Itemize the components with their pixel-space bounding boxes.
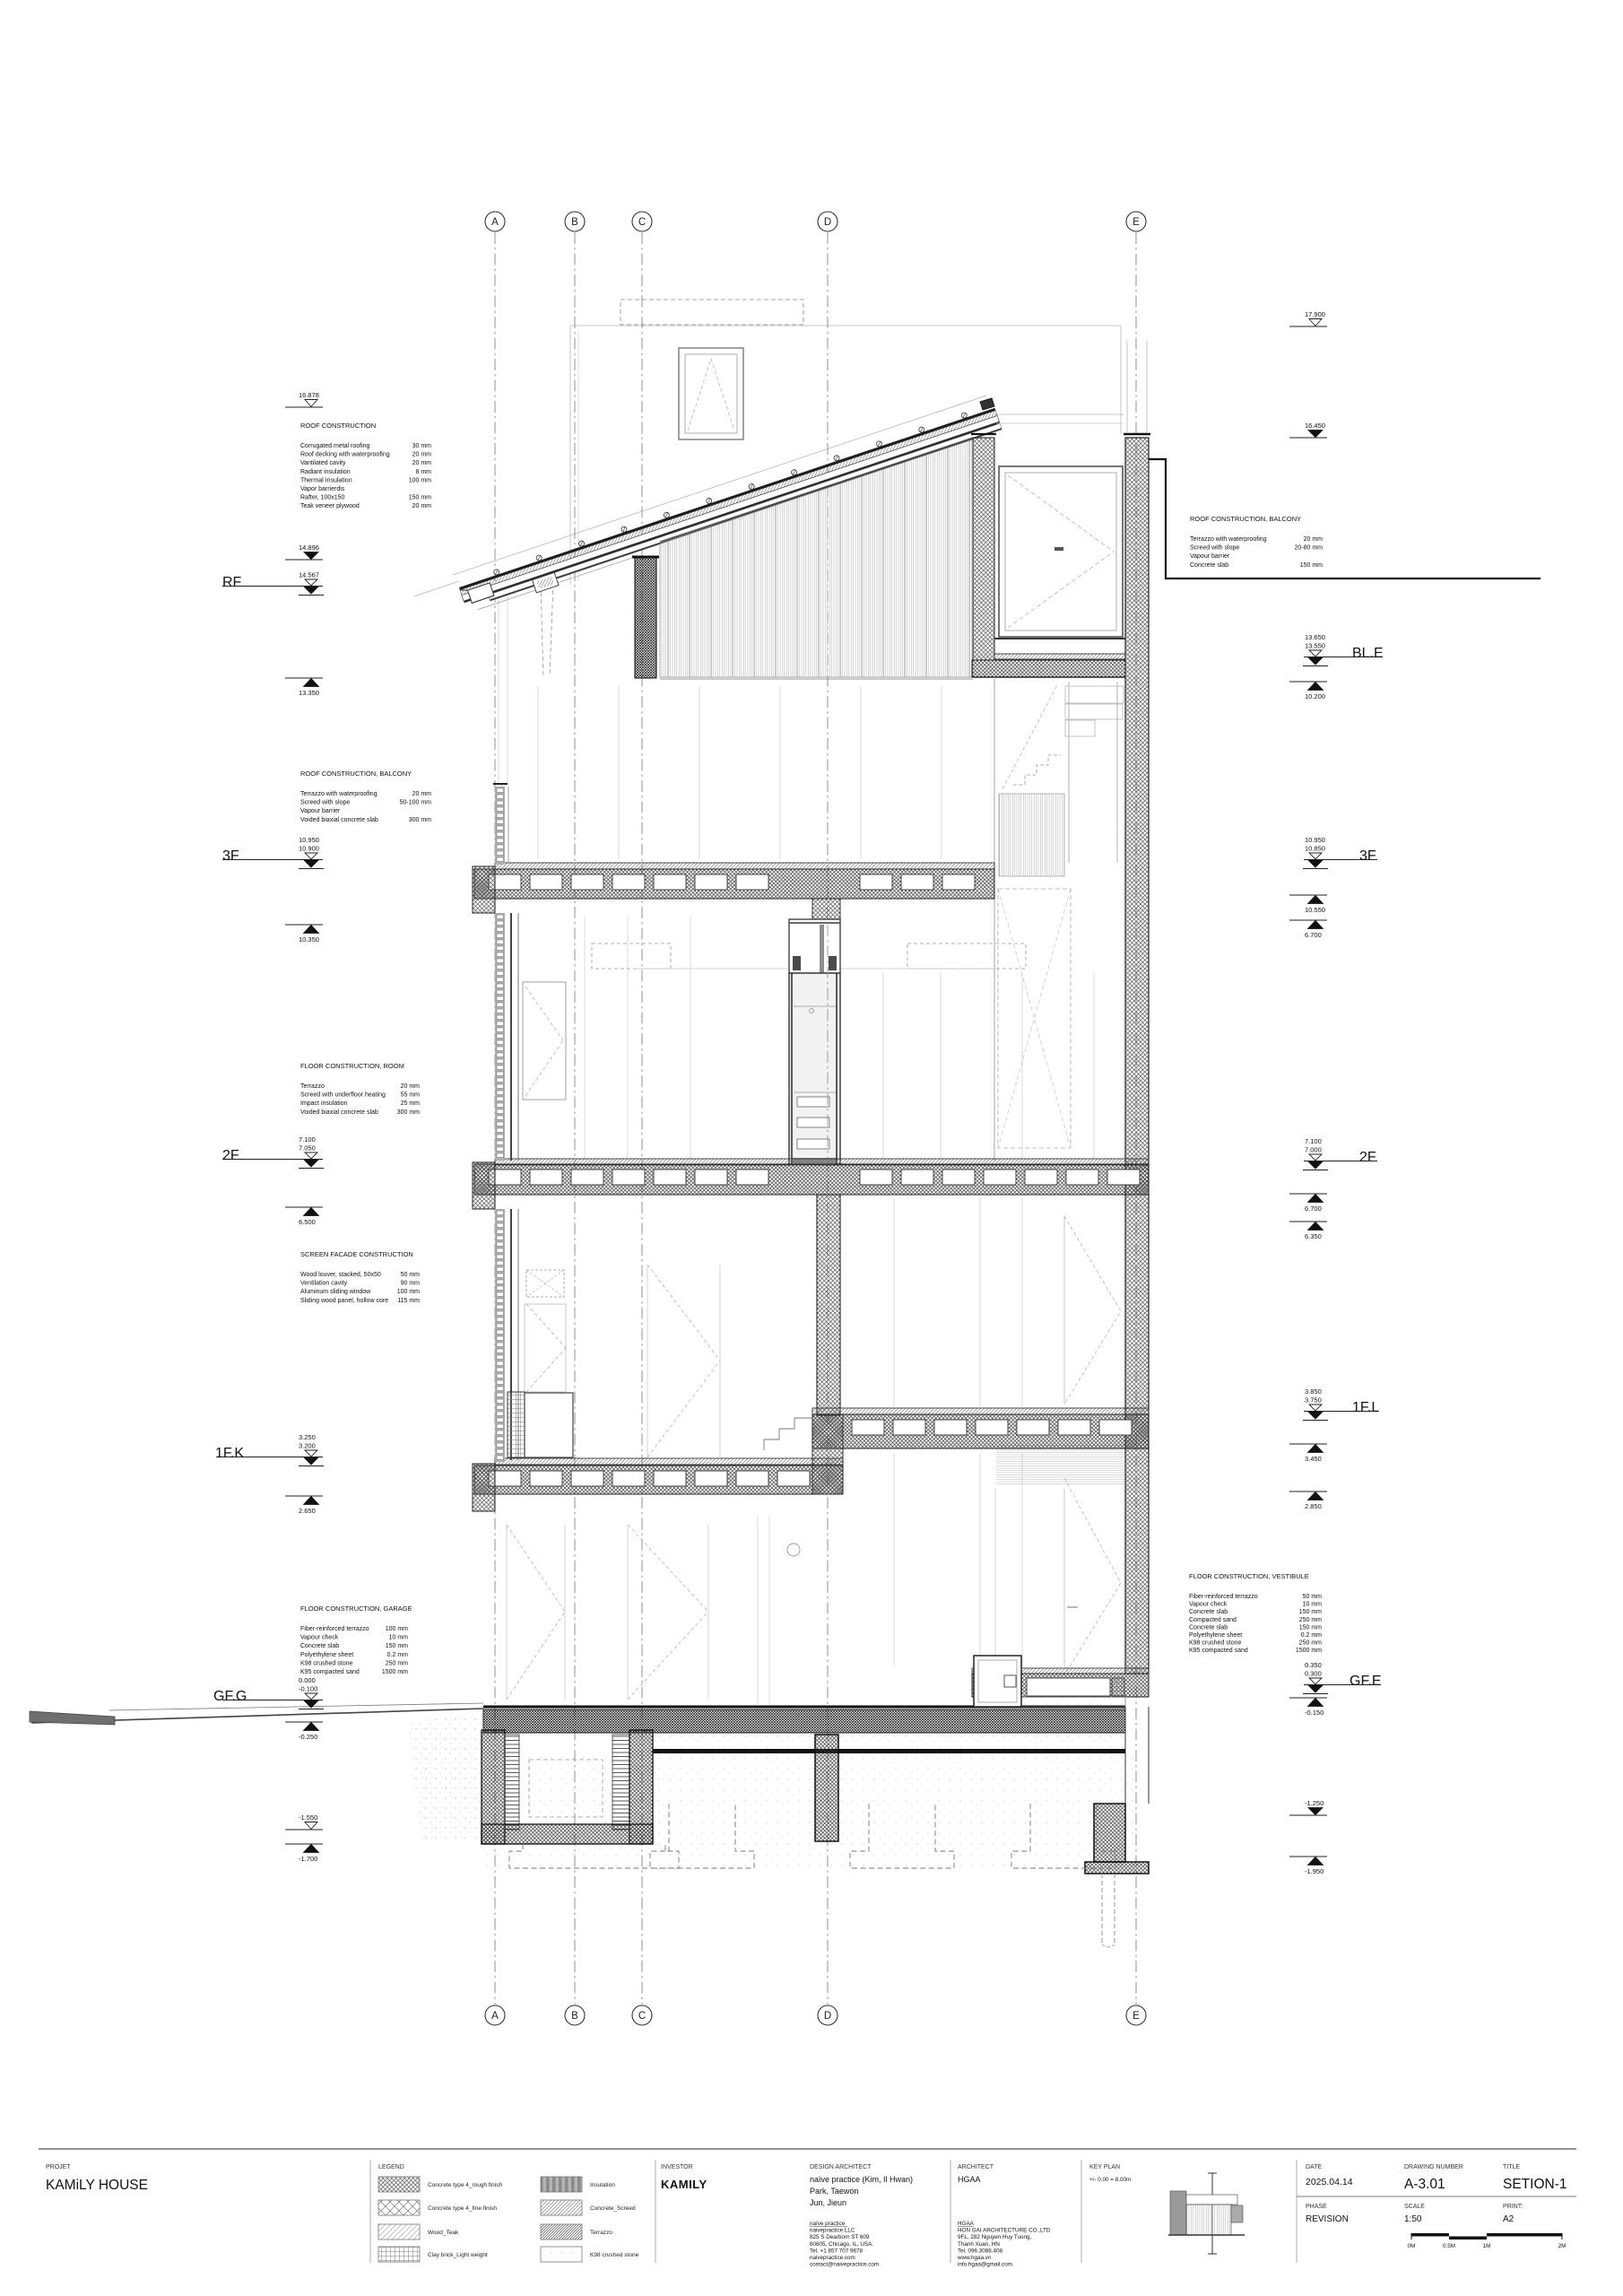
svg-text:PRINT:: PRINT: [1503, 2204, 1523, 2210]
svg-text:10.350: 10.350 [299, 935, 319, 944]
svg-text:100 mm: 100 mm [397, 1289, 420, 1295]
svg-text:30 mm: 30 mm [412, 443, 432, 449]
svg-text:Concrete slab: Concrete slab [1189, 1609, 1228, 1615]
svg-text:K98 crushed stone: K98 crushed stone [300, 1660, 352, 1666]
svg-text:6.700: 6.700 [1305, 931, 1322, 939]
svg-text:10.550: 10.550 [1305, 906, 1325, 914]
svg-text:Concrete slab: Concrete slab [1189, 1624, 1228, 1631]
svg-text:20 mm: 20 mm [412, 791, 432, 797]
svg-text:ROOF CONSTRUCTION, BALCONY: ROOF CONSTRUCTION, BALCONY [300, 770, 412, 778]
svg-text:Terrazzo: Terrazzo [300, 1083, 325, 1090]
svg-text:Roof decking with waterproofin: Roof decking with waterproofing [300, 452, 390, 458]
svg-text:150 mm: 150 mm [386, 1643, 408, 1649]
svg-text:A-3.01: A-3.01 [1404, 2177, 1445, 2192]
svg-text:250 mm: 250 mm [1299, 1617, 1322, 1623]
svg-text:Screed with underfloor heating: Screed with underfloor heating [300, 1092, 386, 1099]
svg-text:14.896: 14.896 [299, 544, 319, 552]
svg-text:naïve practice: naïve practice [810, 2221, 846, 2227]
svg-text:115 mm: 115 mm [397, 1298, 420, 1304]
svg-text:825 S Dearborn ST 609: 825 S Dearborn ST 609 [810, 2234, 870, 2240]
svg-text:FLOOR CONSTRUCTION, VESTIBULE: FLOOR CONSTRUCTION, VESTIBULE [1189, 1572, 1309, 1580]
svg-text:150 mm: 150 mm [409, 495, 431, 501]
svg-text:-0.100: -0.100 [299, 1685, 317, 1693]
svg-text:Corrugated metal roofing: Corrugated metal roofing [300, 443, 370, 449]
svg-text:Vantilated cavity: Vantilated cavity [300, 460, 346, 466]
svg-text:Impact insulation: Impact insulation [300, 1100, 348, 1107]
svg-text:Concrete slab: Concrete slab [300, 1643, 339, 1649]
svg-text:Concrete type 4_rough finish: Concrete type 4_rough finish [428, 2182, 502, 2188]
svg-text:Rafter, 100x150: Rafter, 100x150 [300, 495, 345, 501]
svg-text:Terrazzo with waterproofing: Terrazzo with waterproofing [300, 791, 378, 797]
svg-text:13.350: 13.350 [299, 689, 319, 697]
svg-text:8 mm: 8 mm [416, 469, 432, 475]
svg-text:SCREEN FACADE CONSTRUCTION: SCREEN FACADE CONSTRUCTION [300, 1250, 413, 1258]
svg-text:Screed with slope: Screed with slope [300, 800, 350, 806]
svg-text:K98 crushed stone: K98 crushed stone [590, 2252, 639, 2258]
svg-text:www.hgaa.vn: www.hgaa.vn [957, 2255, 992, 2261]
svg-text:Fiber-reinforced terrazzo: Fiber-reinforced terrazzo [1189, 1594, 1258, 1600]
svg-text:Aluminum sliding window: Aluminum sliding window [300, 1289, 371, 1295]
svg-text:20 mm: 20 mm [412, 452, 432, 458]
svg-text:0.300: 0.300 [1305, 1670, 1322, 1678]
svg-text:Voided biaxial concrete slab: Voided biaxial concrete slab [300, 1109, 378, 1116]
svg-text:1500 mm: 1500 mm [1296, 1648, 1322, 1654]
svg-text:7.100: 7.100 [299, 1135, 316, 1144]
svg-text:-1.700: -1.700 [299, 1855, 317, 1863]
svg-text:naivepractice.com: naivepractice.com [810, 2255, 855, 2261]
svg-text:250 mm: 250 mm [1299, 1640, 1322, 1647]
svg-text:100 mm: 100 mm [386, 1626, 408, 1632]
svg-text:16.878: 16.878 [299, 391, 319, 399]
svg-text:Sliding wood panel, hollow cor: Sliding wood panel, hollow core [300, 1298, 388, 1304]
svg-text:E: E [1133, 2011, 1140, 2022]
svg-text:10.850: 10.850 [1305, 845, 1325, 853]
svg-text:2F: 2F [222, 1148, 239, 1163]
svg-text:Vapour barrier: Vapour barrier [300, 808, 341, 814]
svg-text:-1.950: -1.950 [1305, 1867, 1324, 1875]
svg-text:6.500: 6.500 [299, 1218, 316, 1226]
svg-text:PHASE: PHASE [1306, 2204, 1327, 2210]
svg-text:Voided biaxial concrete slab: Voided biaxial concrete slab [300, 817, 378, 823]
svg-text:150 mm: 150 mm [1300, 562, 1323, 569]
svg-text:1F.L: 1F.L [1352, 1400, 1379, 1415]
svg-text:Concrete type 4_fine finish: Concrete type 4_fine finish [428, 2205, 497, 2212]
svg-text:Vapour check: Vapour check [1189, 1602, 1228, 1608]
svg-text:3.750: 3.750 [1305, 1396, 1322, 1405]
svg-text:Polyethylene sheet: Polyethylene sheet [1189, 1632, 1242, 1639]
svg-text:0.2 mm: 0.2 mm [1301, 1632, 1323, 1639]
svg-text:HGAA: HGAA [958, 2175, 981, 2184]
svg-text:C: C [638, 2011, 646, 2022]
svg-text:20-80 mm: 20-80 mm [1294, 545, 1323, 552]
svg-text:-0.150: -0.150 [1305, 1709, 1324, 1717]
svg-text:300 mm: 300 mm [397, 1109, 420, 1116]
svg-text:0.350: 0.350 [1305, 1661, 1322, 1669]
svg-text:150 mm: 150 mm [1299, 1609, 1322, 1615]
svg-text:KAMiLY HOUSE: KAMiLY HOUSE [46, 2178, 148, 2193]
svg-text:50-100 mm: 50-100 mm [400, 800, 432, 806]
svg-text:1F.K: 1F.K [215, 1446, 244, 1461]
svg-text:FLOOR CONSTRUCTION, GARAGE: FLOOR CONSTRUCTION, GARAGE [300, 1605, 412, 1613]
svg-text:B: B [571, 2011, 578, 2022]
svg-text:KAMILY: KAMILY [661, 2178, 707, 2191]
svg-text:10 mm: 10 mm [389, 1635, 409, 1641]
svg-text:250 mm: 250 mm [386, 1660, 408, 1666]
svg-text:DRAWING NUMBER: DRAWING NUMBER [1404, 2164, 1463, 2170]
svg-text:D: D [824, 2011, 831, 2022]
svg-text:Thermal Insulation: Thermal Insulation [300, 477, 352, 483]
svg-text:Vapour barrier: Vapour barrier [1190, 553, 1230, 560]
svg-text:ROOF CONSTRUCTION, BALCONY: ROOF CONSTRUCTION, BALCONY [1190, 515, 1301, 523]
svg-text:13.650: 13.650 [1305, 633, 1325, 641]
svg-text:TITLE: TITLE [1503, 2164, 1520, 2170]
svg-text:+/- 0.00 = 8.00m: +/- 0.00 = 8.00m [1089, 2177, 1131, 2183]
svg-text:2M: 2M [1558, 2243, 1567, 2249]
svg-text:3.200: 3.200 [299, 1442, 316, 1450]
svg-text:C: C [638, 217, 646, 228]
svg-text:3F: 3F [1359, 848, 1376, 864]
svg-text:10.950: 10.950 [1305, 836, 1325, 844]
svg-text:7.000: 7.000 [1305, 1146, 1322, 1154]
svg-text:KEY PLAN: KEY PLAN [1089, 2164, 1120, 2170]
svg-text:3F: 3F [222, 848, 239, 864]
svg-text:K95 compacted sand: K95 compacted sand [300, 1669, 360, 1675]
svg-text:Fiber-reinforced terrazzo: Fiber-reinforced terrazzo [300, 1626, 369, 1632]
svg-text:7.100: 7.100 [1305, 1137, 1322, 1145]
svg-text:Tel. 096.3088.408: Tel. 096.3088.408 [958, 2248, 1003, 2254]
svg-text:B: B [571, 217, 578, 228]
svg-text:2.650: 2.650 [299, 1507, 316, 1515]
svg-text:FLOOR CONSTRUCTION, ROOM: FLOOR CONSTRUCTION, ROOM [300, 1062, 404, 1070]
svg-text:PROJET: PROJET [46, 2164, 71, 2170]
svg-text:10.950: 10.950 [299, 836, 319, 844]
svg-text:Insulation: Insulation [590, 2182, 615, 2188]
svg-text:Clay brick_Light weight: Clay brick_Light weight [428, 2252, 488, 2258]
svg-text:HGAA: HGAA [958, 2221, 975, 2227]
svg-text:GF.E: GF.E [1350, 1674, 1382, 1689]
svg-text:K95 compacted sand: K95 compacted sand [1189, 1648, 1248, 1654]
svg-text:300 mm: 300 mm [409, 817, 431, 823]
svg-text:60605, Chicago, IL, USA.: 60605, Chicago, IL, USA. [810, 2241, 873, 2248]
svg-text:1500 mm: 1500 mm [382, 1669, 408, 1675]
svg-text:info.hgaa@gmail.com: info.hgaa@gmail.com [958, 2262, 1012, 2268]
svg-text:Concrete_Screed: Concrete_Screed [590, 2205, 636, 2212]
svg-text:ccetact@naivepractice.com: ccetact@naivepractice.com [810, 2262, 879, 2268]
svg-text:RF: RF [222, 575, 242, 590]
svg-text:13.550: 13.550 [1305, 642, 1325, 650]
svg-text:3.850: 3.850 [1305, 1387, 1322, 1396]
svg-text:2025.04.14: 2025.04.14 [1306, 2177, 1353, 2187]
svg-text:DESIGN ARCHITECT: DESIGN ARCHITECT [810, 2164, 872, 2170]
svg-text:A: A [491, 2011, 499, 2022]
svg-text:A: A [491, 217, 499, 228]
svg-text:naïve practice (Kim, Il Hwan): naïve practice (Kim, Il Hwan) [810, 2175, 913, 2184]
svg-text:ROOF CONSTRUCTION: ROOF CONSTRUCTION [300, 422, 376, 430]
svg-text:A2: A2 [1503, 2214, 1515, 2224]
svg-text:3.250: 3.250 [299, 1433, 316, 1441]
svg-text:10.200: 10.200 [1305, 692, 1325, 700]
svg-text:6.350: 6.350 [1305, 1232, 1322, 1240]
svg-text:10.900: 10.900 [299, 845, 319, 853]
svg-text:SETION-1: SETION-1 [1503, 2177, 1567, 2192]
svg-text:2F: 2F [1359, 1150, 1376, 1165]
svg-text:20 mm: 20 mm [412, 503, 432, 509]
svg-text:Jun, Jieun: Jun, Jieun [810, 2198, 846, 2207]
svg-text:Radiant insulation: Radiant insulation [300, 469, 351, 475]
svg-text:INVESTOR: INVESTOR [661, 2164, 693, 2170]
svg-text:Tel. +1 857 707 9678: Tel. +1 857 707 9678 [810, 2248, 863, 2254]
svg-text:1:50: 1:50 [1404, 2214, 1422, 2224]
svg-text:16.450: 16.450 [1305, 422, 1325, 430]
svg-text:3.450: 3.450 [1305, 1455, 1322, 1463]
svg-text:50 mm: 50 mm [1303, 1594, 1323, 1600]
svg-text:150 mm: 150 mm [1299, 1624, 1322, 1631]
svg-text:Terrazzo with waterproofing: Terrazzo with waterproofing [1190, 536, 1267, 543]
svg-text:55 mm: 55 mm [401, 1092, 421, 1099]
svg-text:Polyethylene sheet: Polyethylene sheet [300, 1652, 353, 1658]
svg-text:17.900: 17.900 [1305, 310, 1325, 318]
svg-text:GF.G: GF.G [213, 1689, 247, 1704]
svg-text:100 mm: 100 mm [409, 477, 431, 483]
svg-text:9FL, 282 Nguyen Huy Tuong,: 9FL, 282 Nguyen Huy Tuong, [958, 2234, 1032, 2240]
svg-text:25 mm: 25 mm [401, 1100, 421, 1107]
svg-text:ARCHITECT: ARCHITECT [958, 2164, 994, 2170]
svg-text:D: D [824, 217, 831, 228]
svg-text:2.850: 2.850 [1305, 1502, 1322, 1510]
svg-text:Teak veneer plywood: Teak veneer plywood [300, 503, 360, 509]
svg-text:Terrazzo: Terrazzo [590, 2230, 612, 2236]
svg-text:-0.250: -0.250 [299, 1733, 317, 1741]
svg-text:7.050: 7.050 [299, 1144, 316, 1152]
svg-text:E: E [1133, 217, 1140, 228]
svg-text:0.000: 0.000 [299, 1676, 316, 1684]
svg-text:-1.250: -1.250 [1305, 1799, 1324, 1807]
svg-text:REVISION: REVISION [1306, 2214, 1349, 2224]
svg-text:Vapour check: Vapour check [300, 1635, 339, 1641]
svg-text:0.2 mm: 0.2 mm [387, 1652, 409, 1658]
svg-text:BL.E: BL.E [1352, 646, 1384, 661]
svg-text:Concrete slab: Concrete slab [1190, 562, 1228, 569]
svg-text:6.700: 6.700 [1305, 1205, 1322, 1213]
svg-text:20 mm: 20 mm [1304, 536, 1324, 543]
svg-text:K98 crushed stone: K98 crushed stone [1189, 1640, 1241, 1647]
svg-text:SCALE: SCALE [1404, 2204, 1425, 2210]
svg-text:Wood_Teak: Wood_Teak [428, 2230, 459, 2236]
svg-text:Screed with slope: Screed with slope [1190, 545, 1239, 552]
svg-text:Thanh Xuan, HN: Thanh Xuan, HN [958, 2241, 1000, 2248]
svg-text:HON GAI ARCHITECTURE CO.,LTD: HON GAI ARCHITECTURE CO.,LTD [958, 2228, 1051, 2234]
svg-text:Vapor barrierdis: Vapor barrierdis [300, 486, 345, 492]
svg-text:DATE: DATE [1306, 2164, 1322, 2170]
svg-text:14.567: 14.567 [299, 571, 319, 579]
svg-text:1M: 1M [1483, 2243, 1491, 2249]
svg-text:Ventilation cavity: Ventilation cavity [300, 1281, 348, 1287]
svg-text:Compacted sand: Compacted sand [1189, 1617, 1237, 1623]
svg-text:10 mm: 10 mm [1303, 1602, 1323, 1608]
svg-text:naivepractice LLC: naivepractice LLC [810, 2228, 855, 2234]
svg-text:LEGEND: LEGEND [378, 2164, 404, 2170]
svg-text:90 mm: 90 mm [401, 1281, 421, 1287]
svg-text:-1.550: -1.550 [299, 1813, 317, 1822]
svg-text:20 mm: 20 mm [412, 460, 432, 466]
svg-text:0.5M: 0.5M [1443, 2243, 1455, 2249]
svg-text:Park, Taewon: Park, Taewon [810, 2187, 858, 2196]
svg-text:50 mm: 50 mm [401, 1272, 421, 1278]
svg-text:Wood louver, stacked, 50x50: Wood louver, stacked, 50x50 [300, 1272, 381, 1278]
svg-text:20 mm: 20 mm [401, 1083, 421, 1090]
svg-text:0M: 0M [1408, 2243, 1416, 2249]
